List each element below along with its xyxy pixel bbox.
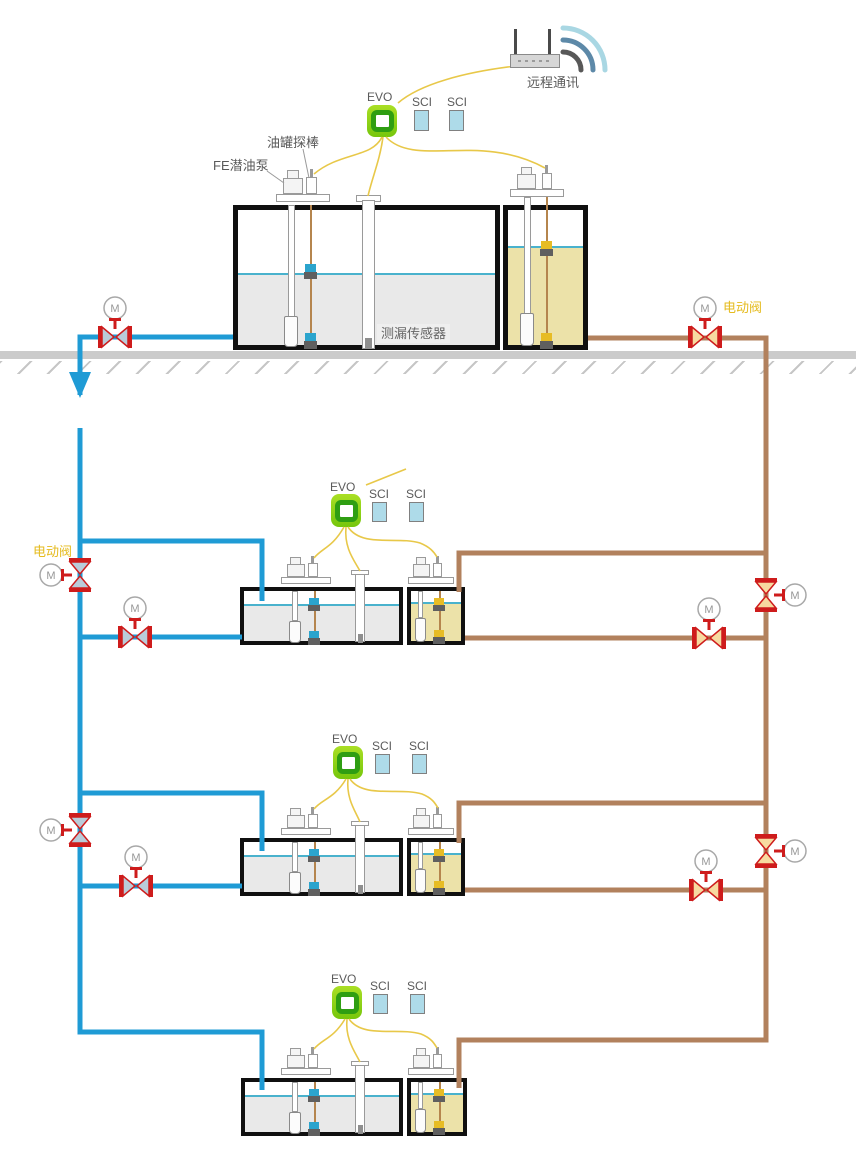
pump-tube xyxy=(292,842,298,872)
probe-callout: 油罐探棒 xyxy=(267,136,319,149)
motor-valve-label: M xyxy=(46,570,55,582)
submersible-pump xyxy=(415,1109,426,1133)
probe-float xyxy=(433,856,445,862)
probe-float xyxy=(540,341,553,349)
probe-float xyxy=(308,1129,320,1136)
probe-float xyxy=(308,856,320,862)
probe-float xyxy=(308,1096,320,1102)
evo-label: EVO xyxy=(330,481,355,493)
motor-valve: M xyxy=(98,297,132,348)
sci-label: SCI xyxy=(447,96,467,108)
remote-comm-label: 远程通讯 xyxy=(527,76,579,89)
probe-head-stub xyxy=(311,807,314,814)
probe-float xyxy=(304,272,317,279)
leak-sensor-tip xyxy=(365,338,372,349)
pump-motor-cap xyxy=(290,557,301,565)
motor-valve: M xyxy=(118,597,152,648)
tank-4-liquid xyxy=(245,1095,399,1132)
pump-motor xyxy=(517,174,536,189)
probe-float xyxy=(309,882,319,889)
pump-tube xyxy=(524,197,531,315)
probe-head xyxy=(542,173,552,189)
router-antenna xyxy=(514,29,517,55)
sci-label: SCI xyxy=(370,980,390,992)
wifi-signal-icon xyxy=(563,28,605,70)
motor-valve-label: M xyxy=(110,303,119,315)
sci-label: SCI xyxy=(409,740,429,752)
pump-tube xyxy=(288,205,295,317)
motor-valve-label: M xyxy=(46,825,55,837)
probe-float xyxy=(434,1089,444,1096)
submersible-pump xyxy=(289,621,301,643)
motor-valve-label: M xyxy=(790,590,799,602)
evo-label: EVO xyxy=(331,973,356,985)
manhole-flange xyxy=(281,828,331,835)
pump-motor xyxy=(287,1055,305,1068)
motor-valve: M xyxy=(119,846,153,897)
motor-valve-label: M xyxy=(130,603,139,615)
probe-head xyxy=(433,814,442,828)
sci-label: SCI xyxy=(406,488,426,500)
evo-label: EVO xyxy=(332,733,357,745)
probe-float xyxy=(309,1089,319,1096)
leak-sensor-label: 测漏传感器 xyxy=(377,324,450,343)
supply-pipe-blue xyxy=(80,337,262,1090)
probe-head-stub xyxy=(310,169,313,177)
sci-module xyxy=(449,110,464,131)
evo-screen xyxy=(371,110,394,132)
probe-float xyxy=(434,598,444,605)
probe-float xyxy=(433,1096,445,1102)
probe-float xyxy=(434,1121,444,1128)
leak-sensor-tip xyxy=(358,634,363,643)
probe-float xyxy=(434,630,444,637)
pump-tube xyxy=(418,842,423,869)
manhole-flange xyxy=(281,577,331,584)
electric-valve-label: 电动阀 xyxy=(33,545,72,558)
submersible-pump xyxy=(415,869,426,893)
motor-valve-label: M xyxy=(790,846,799,858)
ground-line xyxy=(0,351,856,359)
submersible-pump xyxy=(289,872,301,894)
probe-head-stub xyxy=(436,1047,439,1054)
motor-valve: M xyxy=(688,297,722,348)
motor-valve: M xyxy=(755,578,806,612)
probe-head-stub xyxy=(436,556,439,563)
motor-valve: M xyxy=(40,813,91,847)
manhole-flange xyxy=(276,194,330,202)
pump-motor-cap xyxy=(521,167,532,175)
sci-module xyxy=(412,754,427,774)
submersible-pump xyxy=(520,313,534,346)
probe-float xyxy=(433,637,445,644)
submersible-pump xyxy=(415,618,426,642)
pump-motor-cap xyxy=(416,1048,426,1056)
tank-2-liquid xyxy=(244,604,399,641)
evo-console xyxy=(333,746,363,779)
manhole-flange xyxy=(510,189,564,197)
probe-head-stub xyxy=(311,556,314,563)
evo-label: EVO xyxy=(367,91,392,103)
probe-rod xyxy=(546,197,548,348)
sci-label: SCI xyxy=(369,488,389,500)
probe-head xyxy=(308,1054,318,1068)
leak-sensor-tube xyxy=(355,825,365,893)
pump-motor-cap xyxy=(416,557,426,565)
leak-sensor-tip xyxy=(358,885,363,894)
flow-arrow-down xyxy=(69,372,91,398)
probe-float xyxy=(305,264,316,272)
submersible-pump xyxy=(289,1112,301,1134)
probe-head xyxy=(433,1054,442,1068)
motor-valve-label: M xyxy=(700,303,709,315)
tank-3-liquid xyxy=(244,855,399,892)
probe-float xyxy=(308,889,320,896)
manhole-flange xyxy=(408,1068,454,1075)
evo-screen xyxy=(336,992,359,1014)
probe-float xyxy=(541,241,552,249)
probe-float xyxy=(433,1128,445,1135)
tank-3-main xyxy=(240,838,403,896)
probe-float xyxy=(309,631,319,638)
electric-valve-label: 电动阀 xyxy=(723,301,762,314)
motor-valve: M xyxy=(40,558,91,592)
pump-motor xyxy=(283,178,303,194)
sci-label: SCI xyxy=(407,980,427,992)
evo-console xyxy=(332,986,362,1019)
motor-valve: M xyxy=(692,598,726,649)
probe-head-stub xyxy=(545,165,548,173)
probe-float xyxy=(433,605,445,611)
leak-sensor-tube xyxy=(355,1065,365,1133)
return-pipe-brown xyxy=(459,338,766,1088)
tank-farm-diagram: 0# 测漏传感器 EVO SCI SCI 油罐探棒 FE潜油泵 远程通讯 电动阀… xyxy=(0,0,856,1154)
pump-motor-cap xyxy=(287,170,299,179)
router-body xyxy=(511,55,560,68)
leak-sensor-tube xyxy=(355,574,365,642)
sci-module xyxy=(372,502,387,522)
evo-console xyxy=(331,494,361,527)
probe-float xyxy=(434,881,444,888)
sci-module xyxy=(409,502,424,522)
probe-float xyxy=(433,888,445,895)
pump-motor xyxy=(413,564,430,577)
probe-float xyxy=(305,333,316,341)
evo-screen xyxy=(335,500,358,522)
pump-motor-cap xyxy=(416,808,426,816)
manhole-flange xyxy=(408,828,454,835)
motor-valve-label: M xyxy=(704,604,713,616)
pump-motor xyxy=(287,815,305,828)
probe-float xyxy=(308,605,320,611)
pump-tube xyxy=(418,591,423,618)
pump-motor-cap xyxy=(290,1048,301,1056)
pump-motor xyxy=(413,815,430,828)
probe-head xyxy=(433,563,442,577)
motor-valve-label: M xyxy=(131,852,140,864)
router-antenna xyxy=(548,29,551,55)
probe-float xyxy=(540,249,553,256)
probe-head-stub xyxy=(311,1047,314,1054)
router xyxy=(511,29,560,68)
sci-label: SCI xyxy=(372,740,392,752)
probe-head xyxy=(306,177,317,194)
ground-hatching xyxy=(0,361,856,374)
probe-float xyxy=(309,849,319,856)
pump-motor xyxy=(413,1055,430,1068)
pump-motor xyxy=(287,564,305,577)
submersible-pump xyxy=(284,316,298,347)
motor-valve: M xyxy=(755,834,806,868)
probe-head xyxy=(308,814,318,828)
sci-module xyxy=(414,110,429,131)
probe-float xyxy=(309,1122,319,1129)
motor-valve-label: M xyxy=(701,856,710,868)
probe-float xyxy=(541,333,552,341)
evo-console xyxy=(367,105,397,137)
tank-2-main xyxy=(240,587,403,645)
sci-module xyxy=(375,754,390,774)
manhole-flange xyxy=(281,1068,331,1075)
probe-float xyxy=(304,341,317,349)
sci-label: SCI xyxy=(412,96,432,108)
manhole-flange xyxy=(408,577,454,584)
pump-motor-cap xyxy=(290,808,301,816)
probe-float xyxy=(308,638,320,645)
pump-tube xyxy=(292,591,298,621)
pump-callout: FE潜油泵 xyxy=(213,159,269,172)
probe-float xyxy=(434,849,444,856)
sci-module xyxy=(373,994,388,1014)
leak-sensor-tip xyxy=(358,1125,363,1134)
probe-float xyxy=(309,598,319,605)
leak-sensor-tube xyxy=(362,200,375,349)
pump-tube xyxy=(418,1082,423,1109)
probe-head xyxy=(308,563,318,577)
evo-screen xyxy=(337,752,360,774)
motor-valve: M xyxy=(689,850,723,901)
tank-4-main xyxy=(241,1078,403,1136)
sci-module xyxy=(410,994,425,1014)
probe-head-stub xyxy=(436,807,439,814)
pump-tube xyxy=(292,1082,298,1112)
